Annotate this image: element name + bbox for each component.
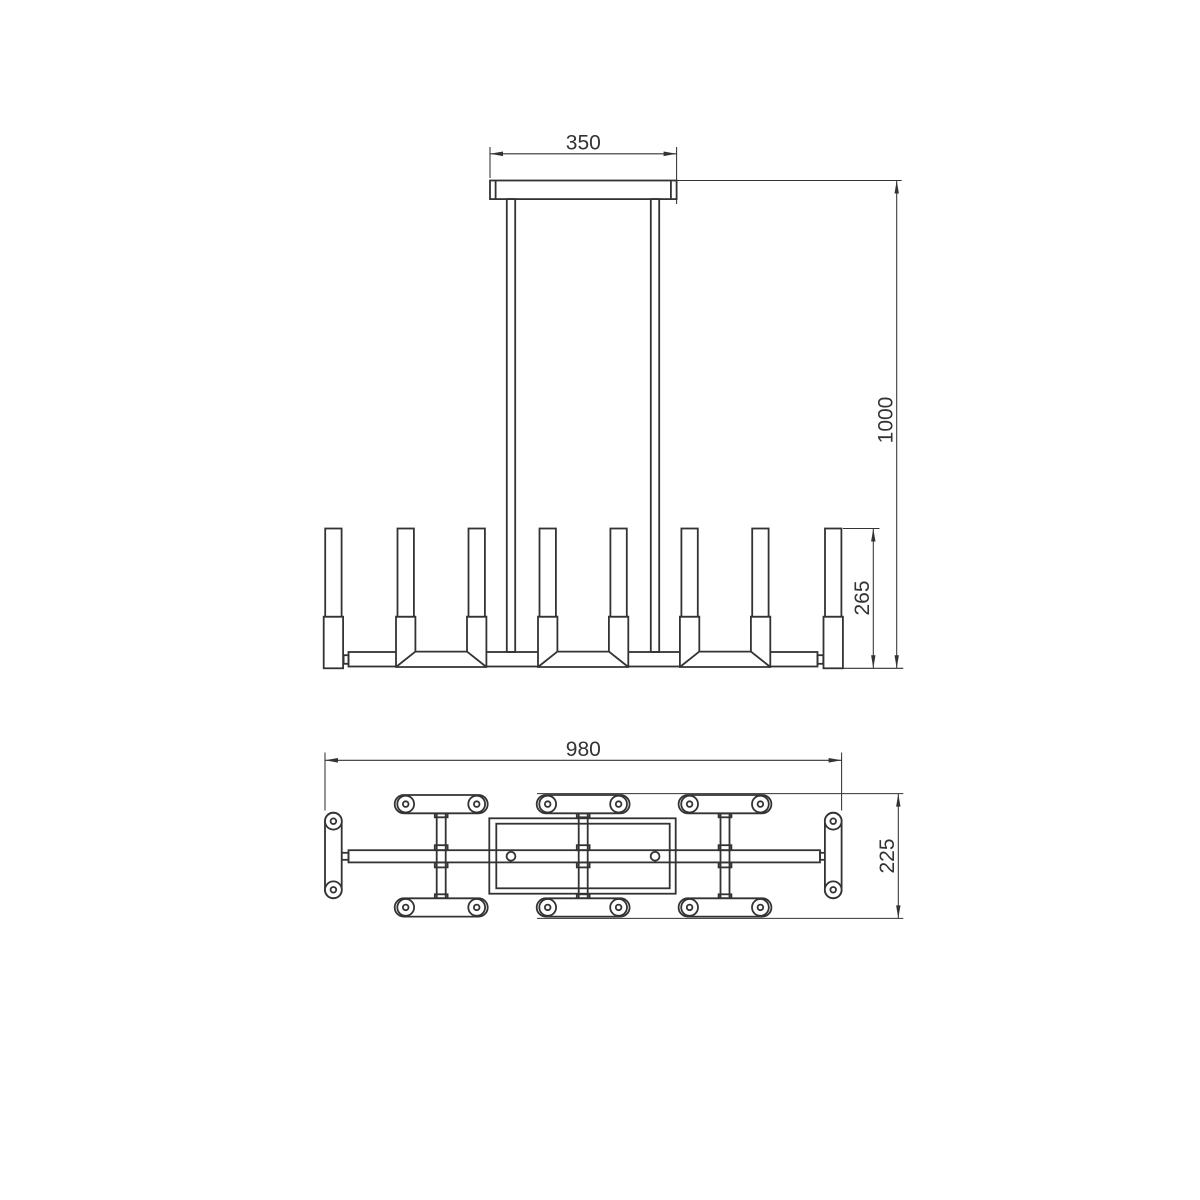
candle-pair [538,529,628,668]
top-plan-view: 980 225 [325,738,903,918]
plan-arms-top [395,795,772,813]
plan-canopy-outline [489,818,675,893]
candle-pair [396,529,486,668]
dimension-label-candle-height: 265 [851,580,874,615]
candle-right-end [824,529,843,669]
stem [577,813,590,898]
rod-mount-circles [507,852,660,861]
plan-stems [435,813,732,898]
suspension-rods [507,199,659,652]
dimension-label-fixture-length: 980 [566,738,601,761]
plan-bar [342,850,825,862]
dimension-label-canopy-width: 350 [566,132,601,155]
stem [435,813,448,898]
front-elevation-view: 350 1000 265 [324,132,904,669]
plan-arms-bottom [395,898,772,916]
stem [719,813,732,898]
canopy [490,181,677,200]
candle-left-end [324,529,343,669]
dimension-label-suspension-height: 1000 [875,397,898,444]
plan-end-plates [325,813,842,899]
technical-drawing: 350 1000 265 [0,0,1200,1200]
candle-pair [680,529,770,668]
drawing-page: 350 1000 265 [0,0,1200,1200]
dimension-candle-height: 265 [843,529,880,669]
dimension-label-fixture-depth: 225 [876,838,899,873]
